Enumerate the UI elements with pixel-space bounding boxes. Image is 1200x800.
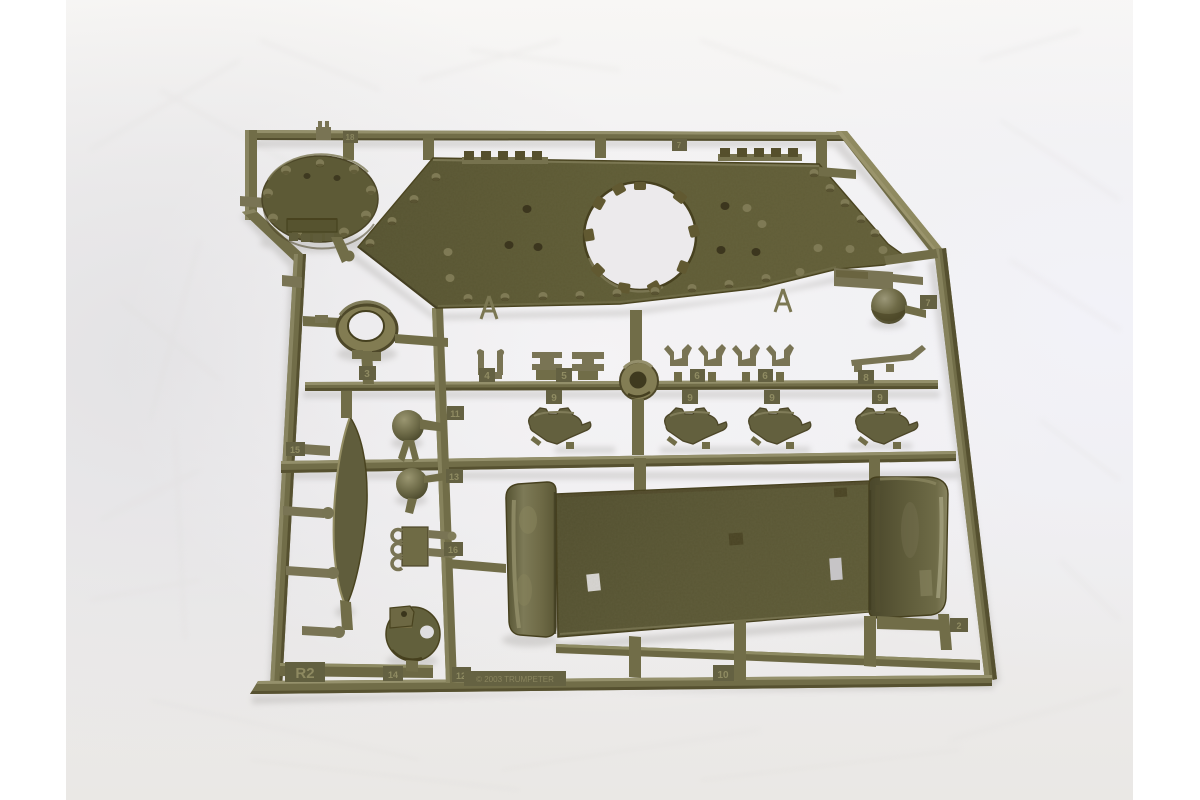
svg-text:16: 16 [448, 545, 458, 555]
svg-text:5: 5 [561, 371, 567, 382]
svg-text:3: 3 [364, 369, 370, 380]
svg-text:9: 9 [769, 393, 775, 404]
svg-text:7: 7 [925, 298, 930, 308]
svg-text:9: 9 [877, 393, 883, 404]
svg-text:R2: R2 [295, 665, 314, 682]
svg-text:7: 7 [677, 141, 682, 150]
svg-text:2: 2 [956, 621, 961, 631]
svg-text:8: 8 [863, 373, 869, 384]
svg-text:9: 9 [551, 393, 557, 404]
svg-text:18: 18 [346, 133, 355, 142]
svg-text:13: 13 [449, 472, 459, 482]
svg-text:© 2003 TRUMPETER: © 2003 TRUMPETER [476, 675, 554, 684]
svg-text:10: 10 [717, 670, 729, 681]
svg-text:14: 14 [388, 670, 398, 680]
svg-text:4: 4 [484, 371, 490, 382]
svg-text:9: 9 [687, 393, 693, 404]
svg-text:15: 15 [290, 445, 300, 455]
svg-text:6: 6 [694, 371, 700, 382]
svg-text:6: 6 [762, 371, 768, 382]
svg-text:11: 11 [450, 409, 460, 419]
